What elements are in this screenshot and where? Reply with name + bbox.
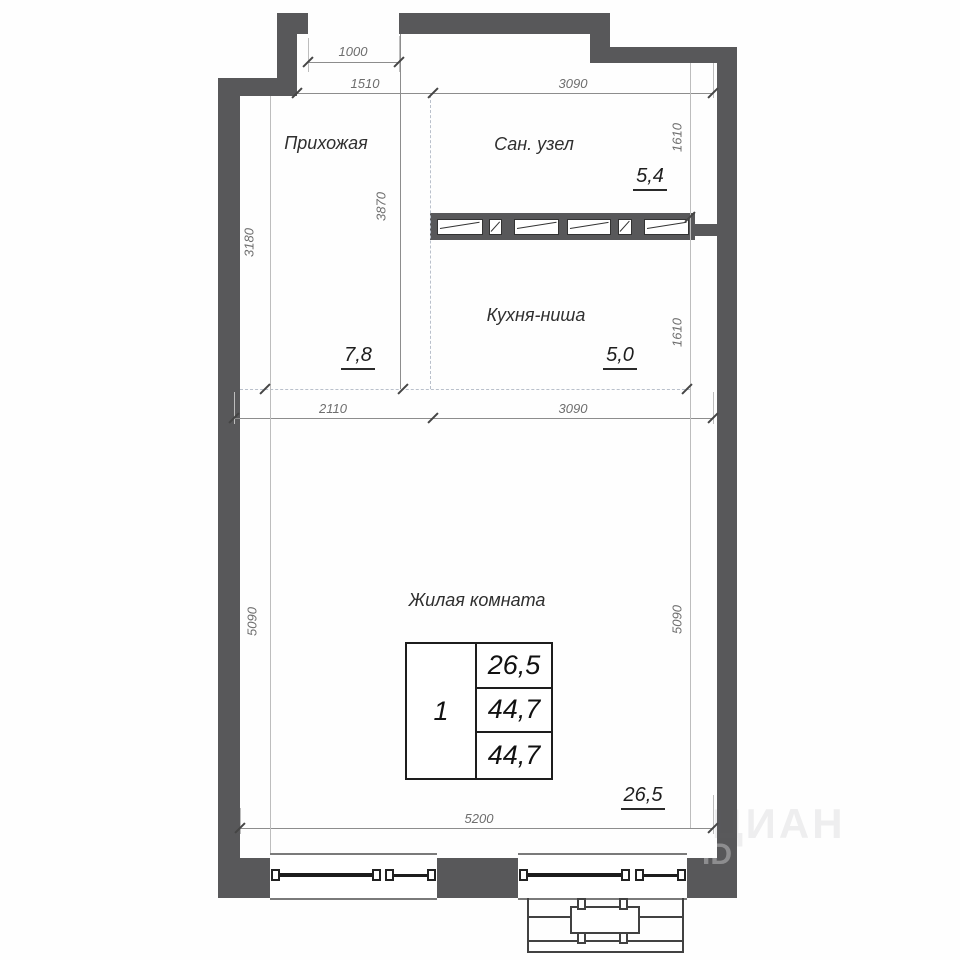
dimension-label: 1610: [670, 303, 685, 363]
room-label-hallway: Прихожая: [256, 133, 396, 154]
basket-unit: [570, 906, 640, 934]
sash-line: [440, 222, 480, 229]
dimension-line: [240, 828, 713, 829]
extension-line: [270, 96, 271, 853]
total-area-cell: 44,7: [477, 733, 551, 778]
area-value: 5,0: [603, 344, 637, 370]
wall-top-left: [218, 78, 297, 96]
sash-line: [570, 222, 608, 229]
dimension-line: [297, 93, 713, 94]
dimension-label: 3090: [543, 76, 603, 91]
dimension-label: 5090: [245, 592, 260, 652]
floor-plan: 1000 1510 3090 2110 3090 5200 3180 5090 …: [0, 0, 960, 960]
sash-line: [491, 222, 501, 232]
room-label-kitchen: Кухня-ниша: [456, 305, 616, 326]
dimension-label: 5200: [449, 811, 509, 826]
zone-boundary-line: [240, 389, 690, 390]
wall-bottom-left: [218, 858, 270, 898]
basket-rail: [529, 940, 682, 942]
window-left: [270, 853, 437, 900]
room-label-bathroom: Сан. узел: [464, 134, 604, 155]
window-pane: [525, 873, 623, 877]
window-frame-block: [621, 869, 630, 881]
window-frame-block: [635, 869, 644, 881]
window-pane: [277, 873, 374, 877]
dimension-line: [234, 418, 713, 419]
zone-boundary-line: [430, 95, 431, 389]
room-area-hallway: 7,8: [328, 344, 388, 370]
window-frame-block: [385, 869, 394, 881]
apartment-info-table: 1 26,5 44,7 44,7: [405, 642, 553, 780]
basket-bracket: [577, 932, 586, 944]
extension-line: [240, 808, 241, 834]
extension-line: [690, 63, 691, 828]
basket-bracket: [619, 932, 628, 944]
partition-connector: [695, 224, 717, 236]
balcony-basket: [527, 898, 684, 953]
sash-line: [647, 222, 686, 229]
partition-opening: [489, 219, 502, 235]
wall-entry-stub-top: [277, 13, 308, 34]
wall-top-main: [399, 13, 590, 34]
living-area-cell: 26,5: [477, 644, 551, 689]
area-value: 7,8: [341, 344, 375, 370]
extension-line: [308, 38, 309, 72]
sash-line: [620, 221, 630, 232]
wall-bottom-middle: [437, 858, 518, 898]
window-frame-block: [271, 869, 280, 881]
window-frame-block: [427, 869, 436, 881]
wall-right: [717, 63, 737, 898]
window-frame-block: [677, 869, 686, 881]
total-area-cell: 44,7: [477, 689, 551, 734]
window-frame-block: [519, 869, 528, 881]
window-right: [518, 853, 687, 900]
wall-top-right: [610, 47, 737, 63]
wall-top-step: [590, 13, 610, 63]
watermark-logo: ЦИАН: [712, 800, 846, 848]
dimension-label: 1000: [323, 44, 383, 59]
partition-opening: [618, 219, 632, 235]
extension-line: [399, 36, 400, 72]
sash-line: [517, 222, 556, 229]
dimension-label: 2110: [303, 401, 363, 416]
basket-bracket: [577, 898, 586, 910]
dimension-label: 3180: [242, 213, 257, 273]
rooms-count-cell: 1: [407, 644, 477, 778]
partition-opening: [437, 219, 483, 235]
dimension-line: [308, 62, 399, 63]
partition-opening: [644, 219, 689, 235]
wall-entry-stub: [277, 34, 297, 80]
room-label-living: Жилая комната: [397, 590, 557, 611]
basket-bracket: [619, 898, 628, 910]
room-area-bathroom: 5,4: [620, 165, 680, 191]
area-value: 26,5: [621, 784, 666, 810]
wall-left: [218, 96, 240, 898]
room-area-kitchen: 5,0: [590, 344, 650, 370]
watermark-id-badge: ID: [702, 838, 732, 872]
partition-opening: [567, 219, 611, 235]
dimension-label: 1610: [670, 108, 685, 168]
window-frame-block: [372, 869, 381, 881]
dimension-label: 3090: [543, 401, 603, 416]
partition-opening: [514, 219, 559, 235]
dimension-label: 1510: [335, 76, 395, 91]
area-value: 5,4: [633, 165, 667, 191]
dimension-label: 3870: [374, 177, 389, 237]
dimension-label: 5090: [670, 590, 685, 650]
room-area-living: 26,5: [603, 784, 683, 810]
extension-line: [400, 34, 401, 389]
